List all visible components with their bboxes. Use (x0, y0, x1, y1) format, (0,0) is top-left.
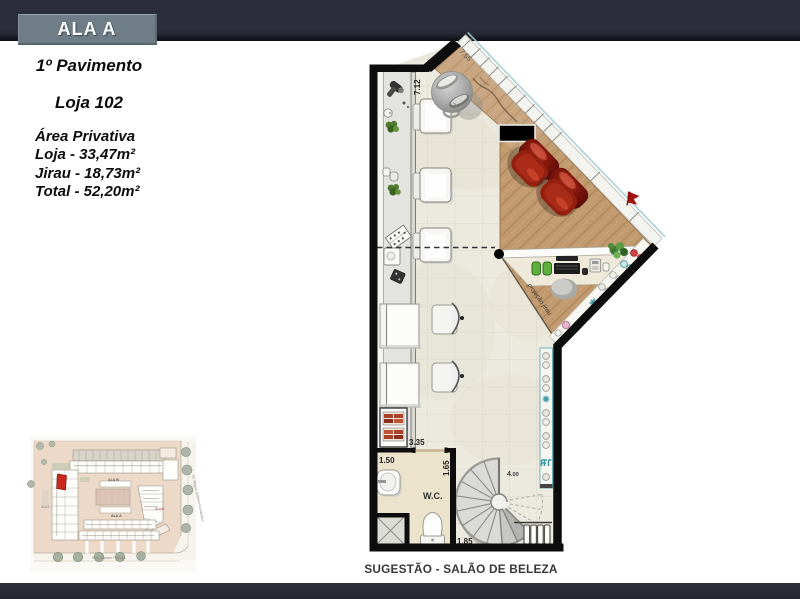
svg-text:4.00: 4.00 (507, 471, 519, 478)
svg-text:ALA A: ALA A (41, 505, 51, 509)
svg-text:ALA B: ALA B (108, 478, 119, 482)
svg-text:Rua Gláuber Pessoa: Rua Gláuber Pessoa (92, 556, 125, 560)
svg-text:3.35: 3.35 (409, 438, 425, 447)
svg-text:7.12: 7.12 (413, 79, 422, 95)
svg-text:1.65: 1.65 (442, 460, 451, 476)
svg-text:ALA B: ALA B (155, 507, 164, 511)
svg-text:ALA A: ALA A (111, 514, 122, 518)
svg-text:1.50: 1.50 (379, 456, 395, 465)
svg-text:1.85: 1.85 (457, 537, 473, 546)
svg-text:W.C.: W.C. (423, 491, 443, 501)
